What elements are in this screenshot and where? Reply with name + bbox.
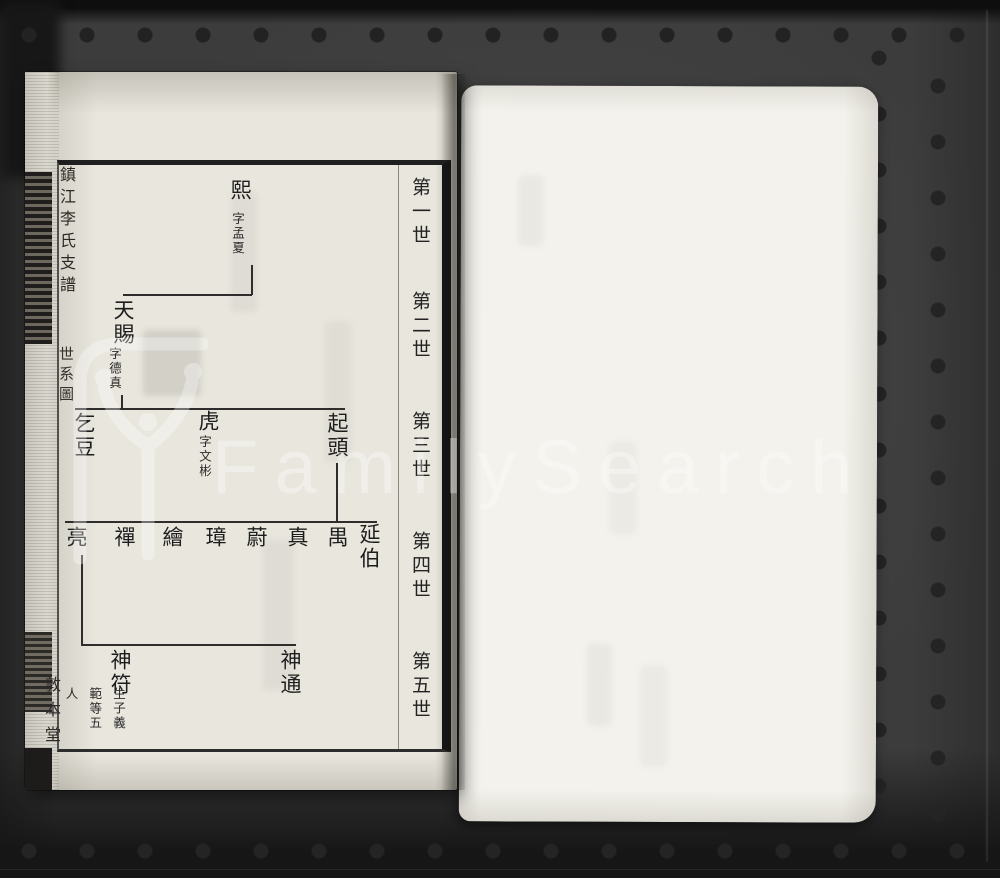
person-name-gen4-4: 蔚	[241, 526, 271, 550]
film-scratch-vertical	[986, 10, 988, 862]
left-book-page: 鎮江李氏支譜 世系圖 敦本堂 第一世 第二世 第三世 第四世 第五世 熙 字孟夏…	[25, 72, 457, 790]
person-name-gen4-7: 禪	[109, 526, 139, 550]
generation-label-2: 第二世	[403, 291, 433, 363]
person-courtesy-gen3-middle: 字文彬	[195, 435, 214, 497]
person-name-gen4-5: 璋	[200, 526, 230, 550]
person-name-gen4-8: 亮	[61, 526, 91, 550]
ghost-text-column	[519, 175, 543, 245]
generation-column-divider	[398, 165, 399, 749]
person-name-gen4-1: 延伯	[354, 523, 384, 579]
ghost-text-column	[587, 644, 611, 726]
spine-hall-mark: 敦本堂	[38, 676, 62, 786]
spine-section-label: 世系圖	[55, 346, 76, 426]
generation-label-3: 第三世	[403, 411, 433, 483]
right-book-page-blank	[459, 85, 879, 822]
spine-book-title: 鎮江李氏支譜	[53, 166, 77, 356]
connector-line	[65, 521, 377, 523]
generation-label-4: 第四世	[403, 531, 433, 603]
connector-line	[81, 644, 296, 646]
person-name-gen4-3: 真	[282, 526, 312, 550]
person-name-gen5-right: 神通	[275, 649, 305, 697]
connector-line	[121, 395, 123, 409]
person-courtesy-gen1: 字孟夏	[228, 212, 247, 274]
person-name-gen4-6: 繪	[157, 526, 187, 550]
person-name-gen3-right: 起頭	[322, 412, 352, 460]
person-note-gen5-left: 生子義範等五人	[59, 687, 129, 739]
ghost-text-column	[641, 666, 667, 766]
person-name-gen2: 天賜	[108, 299, 138, 347]
ghost-text-column	[610, 442, 636, 534]
person-name-gen1: 熙	[225, 179, 255, 203]
connector-line	[251, 265, 253, 295]
person-name-gen3-middle: 虎	[193, 410, 223, 434]
genealogy-chart-frame: 第一世 第二世 第三世 第四世 第五世 熙 字孟夏 天賜 字德真 乞豆 虎 字文…	[57, 160, 451, 752]
spine-ink-band-top	[25, 172, 52, 344]
connector-line	[336, 463, 338, 521]
person-name-gen4-2: 禺	[322, 526, 352, 550]
film-scratch-horizontal	[0, 869, 1000, 870]
connector-line	[81, 555, 83, 645]
connector-line	[123, 294, 252, 296]
generation-label-1: 第一世	[403, 177, 433, 249]
book-gutter-shadow	[441, 74, 465, 790]
generation-label-5: 第五世	[403, 651, 433, 723]
